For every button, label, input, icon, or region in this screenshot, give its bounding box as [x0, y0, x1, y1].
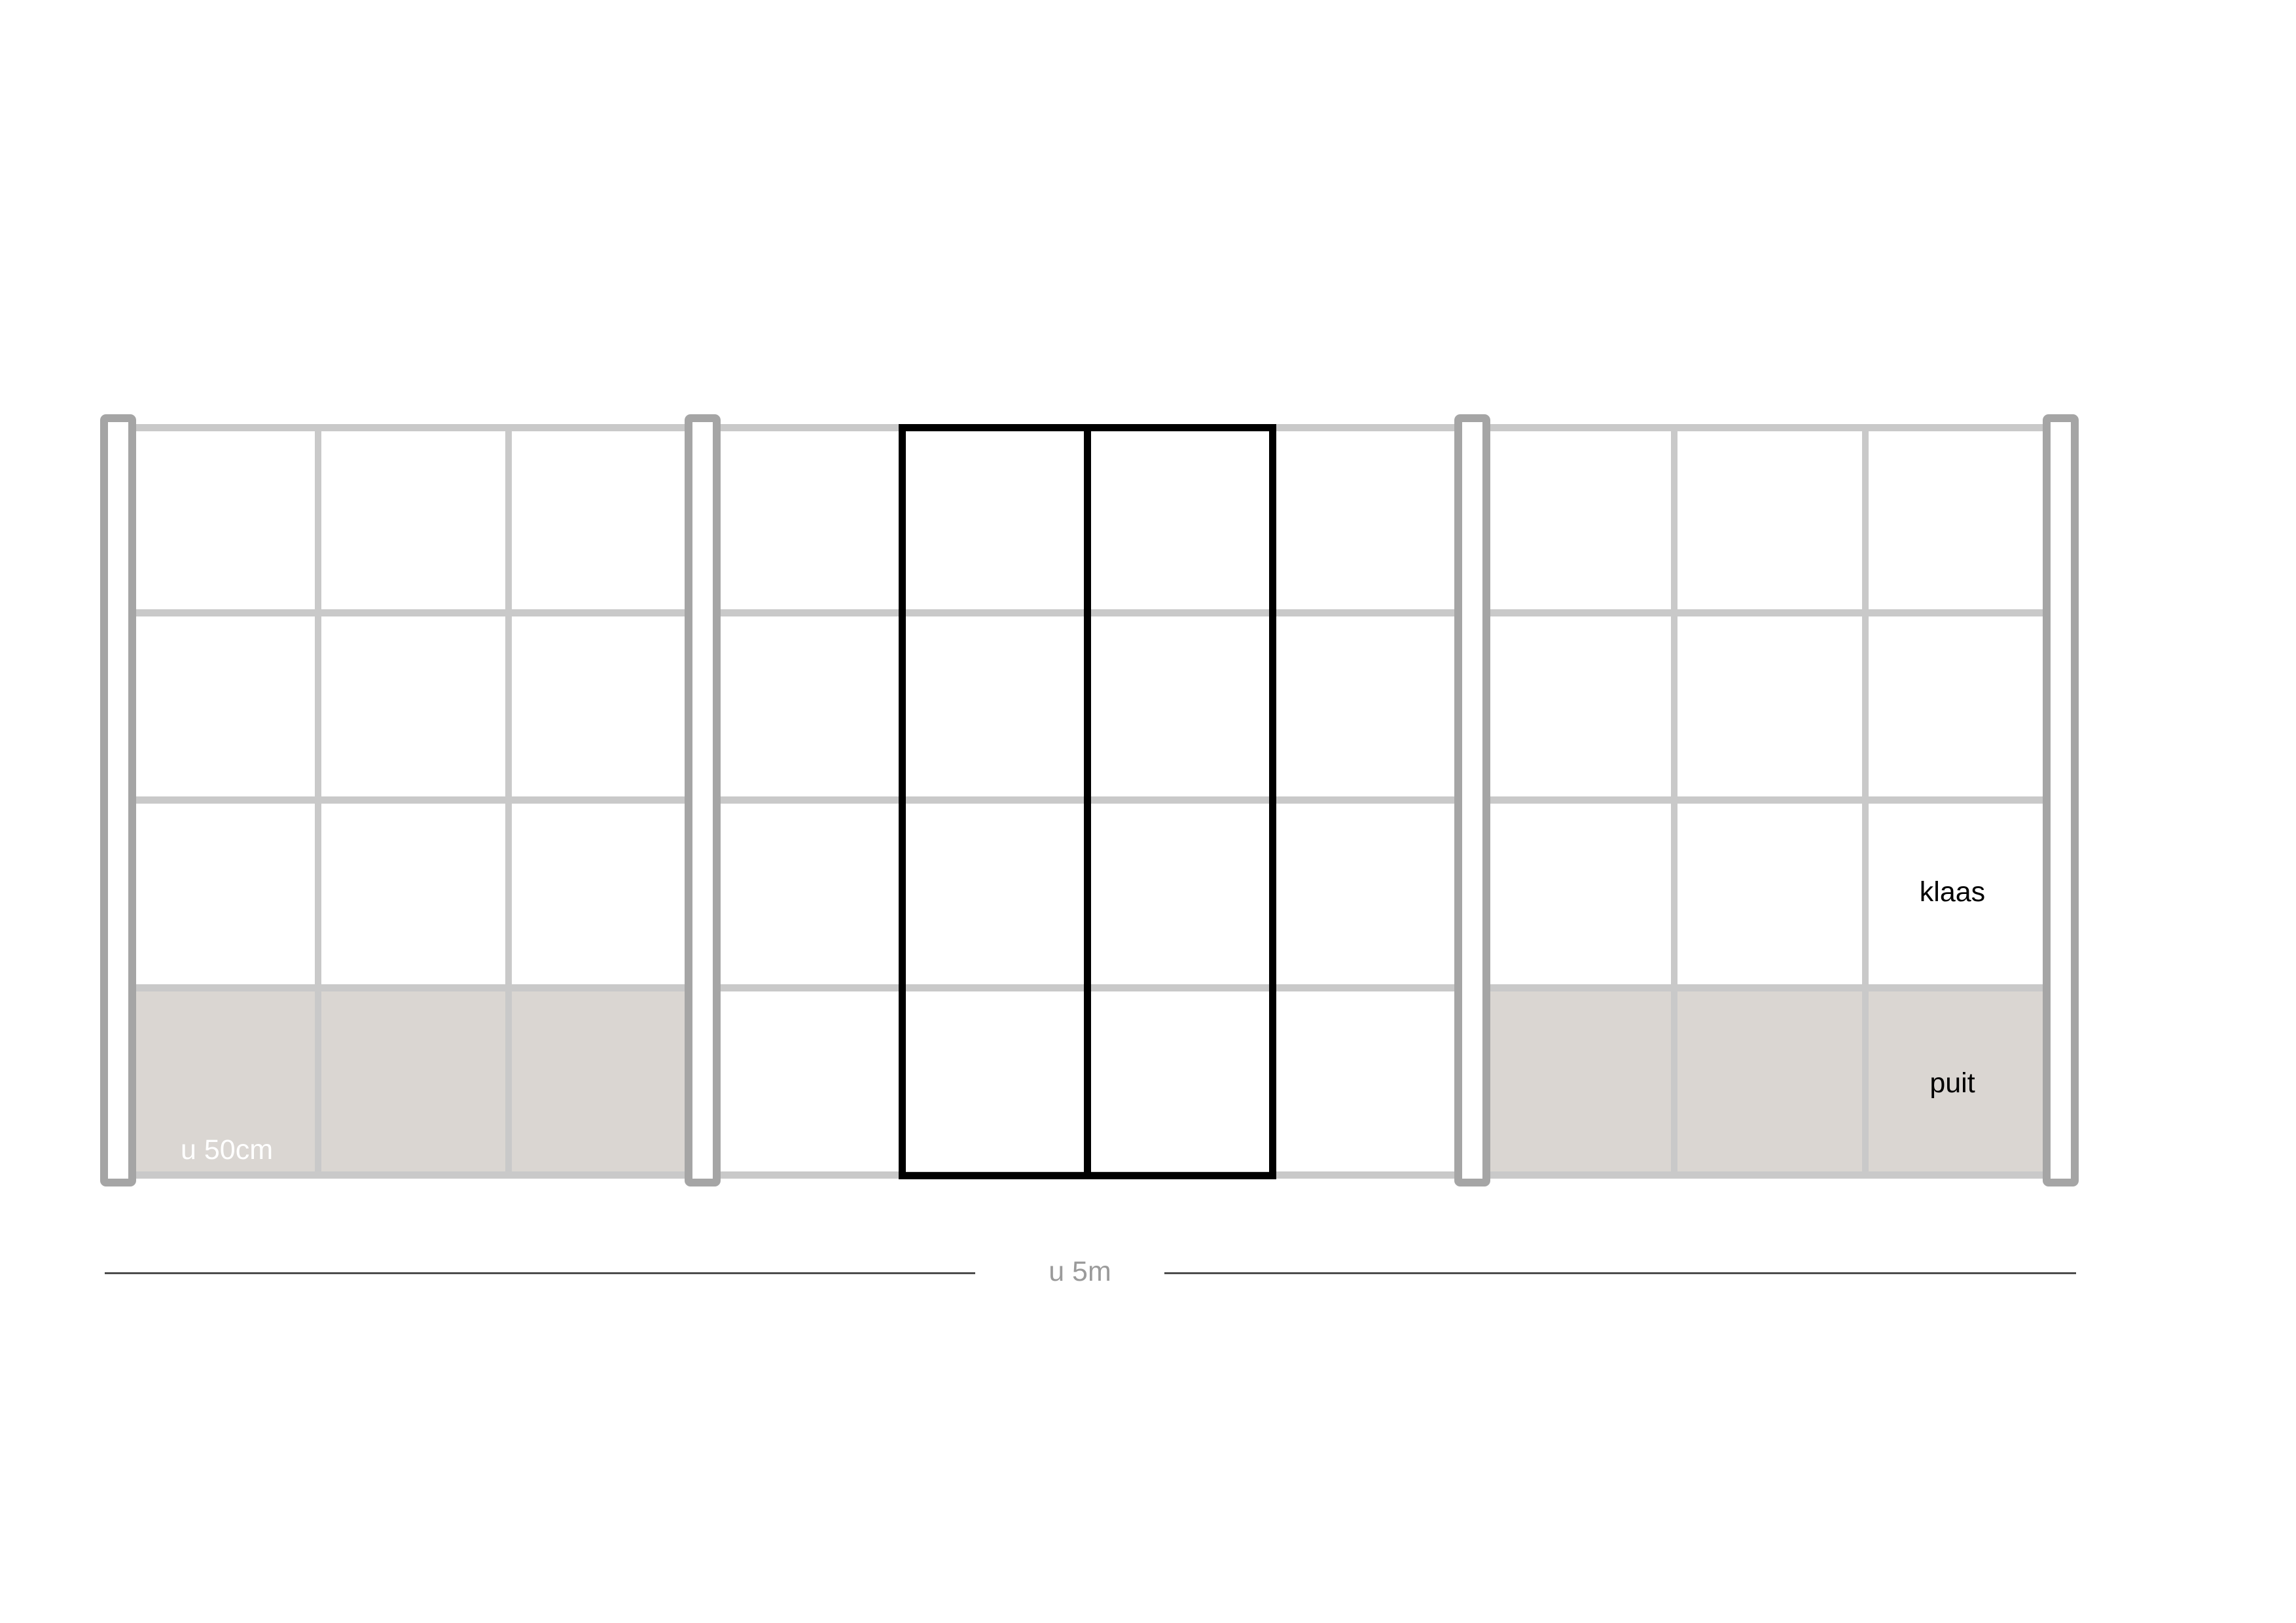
grid-divider-vertical [1862, 425, 1869, 1177]
door-leaf-divider [1084, 431, 1091, 1172]
fence-elevation-drawing: u 50cm klaas puit u 5m [0, 0, 2296, 1623]
label-panel-width: u 50cm [181, 1136, 273, 1164]
grid-divider-vertical [315, 425, 321, 1177]
door-frame [899, 424, 1276, 1179]
label-total-width: u 5m [982, 1258, 1178, 1286]
dimension-line-left [105, 1272, 975, 1274]
dimension-line-right [1164, 1272, 2076, 1274]
label-wood: puit [1862, 1069, 2043, 1097]
grid-divider-vertical [505, 425, 512, 1177]
label-glass: klaas [1862, 878, 2043, 906]
fence-post [1454, 414, 1490, 1186]
grid-divider-vertical [1671, 425, 1677, 1177]
fence-post [2043, 414, 2079, 1186]
fence-post [685, 414, 721, 1186]
fence-post [100, 414, 136, 1186]
